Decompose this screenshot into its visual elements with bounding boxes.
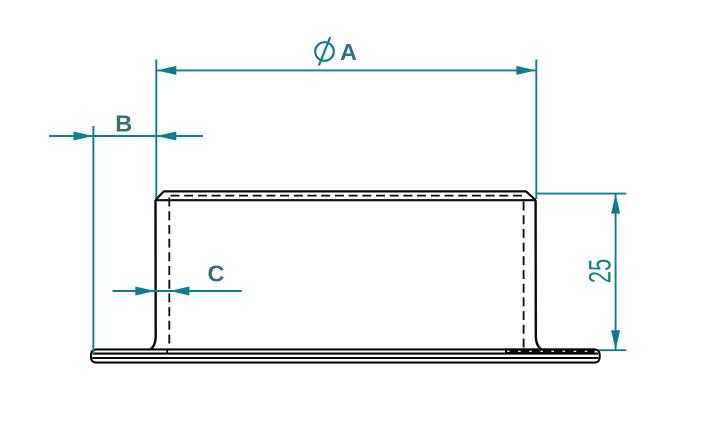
svg-text:25: 25	[582, 259, 618, 284]
svg-text:C: C	[208, 261, 225, 287]
svg-text:A: A	[340, 39, 357, 65]
svg-text:B: B	[115, 111, 132, 137]
